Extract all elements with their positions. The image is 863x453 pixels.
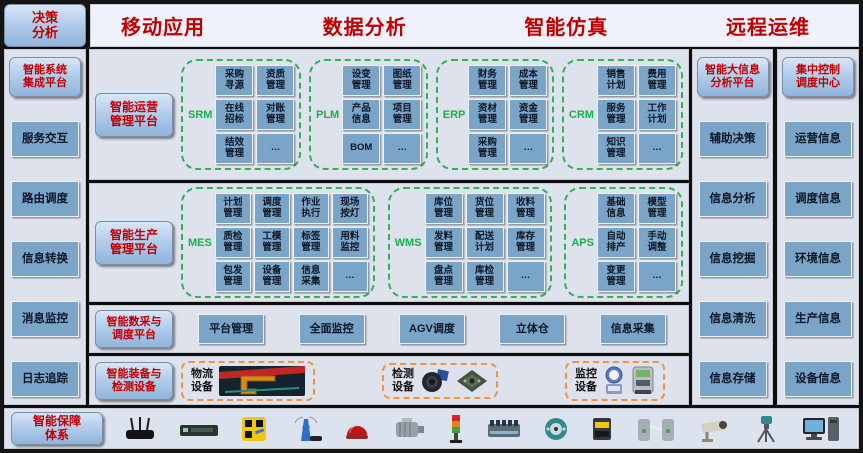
camera-lens-image (420, 368, 450, 394)
module-chip[interactable]: 基础 信息 (597, 193, 635, 224)
antenna-tower-icon (289, 415, 323, 443)
big-info-analysis-column: 智能大信息 分析平台 辅助决策 信息分析 信息挖掘 信息清洗 信息存储 (692, 49, 773, 405)
module-chip[interactable]: 服务 管理 (597, 99, 635, 130)
module-chip-more[interactable]: … (509, 133, 547, 164)
module-chip[interactable]: 盘点 管理 (425, 261, 463, 292)
module-chip[interactable]: 产品 信息 (342, 99, 380, 130)
chip-stereo-warehouse[interactable]: 立体仓 (499, 314, 565, 344)
module-chip[interactable]: 包发 管理 (215, 261, 251, 292)
support-system-label[interactable]: 智能保障 体系 (11, 412, 103, 445)
sidebar-item-log-trace[interactable]: 日志追踪 (11, 361, 79, 397)
module-chip[interactable]: 财务 管理 (468, 65, 506, 96)
col2-item-operation-info[interactable]: 运营信息 (784, 121, 852, 157)
module-chip[interactable]: 工模 管理 (254, 227, 290, 258)
turnstile-gate-icon (636, 415, 676, 443)
group-crm-name: CRM (569, 109, 594, 121)
module-chip[interactable]: 图纸 管理 (383, 65, 421, 96)
central-control-title[interactable]: 集中控制 调度中心 (782, 57, 854, 97)
col1-item-info-analysis[interactable]: 信息分析 (699, 181, 767, 217)
network-switch-icon (179, 417, 219, 441)
module-chip[interactable]: 资材 管理 (468, 99, 506, 130)
module-chip[interactable]: 质检 管理 (215, 227, 251, 258)
support-system-bar: 智能保障 体系 (4, 408, 859, 449)
chip-full-monitoring[interactable]: 全面监控 (299, 314, 365, 344)
module-chip[interactable]: 在线 招标 (215, 99, 253, 130)
col1-item-info-cleaning[interactable]: 信息清洗 (699, 301, 767, 337)
chip-agv-dispatch[interactable]: AGV调度 (399, 314, 465, 344)
group-plm-name: PLM (316, 109, 339, 121)
module-chip[interactable]: 库位 管理 (425, 193, 463, 224)
module-chip[interactable]: 用料 监控 (332, 227, 368, 258)
big-info-analysis-title[interactable]: 智能大信息 分析平台 (697, 57, 769, 97)
qr-code-scanner-icon (240, 416, 268, 442)
sidebar-item-route-dispatch[interactable]: 路由调度 (11, 181, 79, 217)
device-box-inspection: 检测 设备 (382, 363, 498, 399)
production-platform-label[interactable]: 智能生产 管理平台 (95, 221, 173, 265)
module-chip-more[interactable]: … (256, 133, 294, 164)
water-meter-image (603, 366, 625, 396)
production-platform-panel: 智能生产 管理平台 MES 计划 管理 调度 管理 作业 执行 现场 按灯 质检… (89, 183, 689, 302)
group-crm: CRM 销售 计划 费用 管理 服务 管理 工作 计划 知识 管理 … (562, 59, 683, 170)
module-chip[interactable]: 费用 管理 (638, 65, 676, 96)
module-chip[interactable]: 信息 采集 (293, 261, 329, 292)
group-aps: APS 基础 信息 模型 管理 自动 排产 手动 调整 变更 管理 … (564, 187, 683, 298)
module-chip[interactable]: 收料 管理 (507, 193, 545, 224)
inspection-device-label: 检测 设备 (392, 368, 414, 393)
wireless-router-icon (122, 415, 158, 443)
group-erp: ERP 财务 管理 成本 管理 资材 管理 资金 管理 采购 管理 … (436, 59, 555, 170)
header-remote-ops: 远程运维 (726, 11, 810, 40)
rotary-encoder-icon (543, 417, 569, 441)
alarm-dome-light-icon (344, 417, 370, 441)
module-chip[interactable]: 资质 管理 (256, 65, 294, 96)
module-chip[interactable]: 现场 按灯 (332, 193, 368, 224)
module-chip[interactable]: BOM (342, 133, 380, 164)
col1-item-assisted-decision[interactable]: 辅助决策 (699, 121, 767, 157)
module-chip[interactable]: 库检 管理 (466, 261, 504, 292)
module-chip[interactable]: 计划 管理 (215, 193, 251, 224)
main-platforms-area: 智能运营 管理平台 SRM 采购 寻源 资质 管理 在线 招标 对账 管理 结效… (89, 49, 689, 405)
module-chip[interactable]: 采购 寻源 (215, 65, 253, 96)
crane-image (219, 366, 305, 396)
sidebar-item-message-monitor[interactable]: 消息监控 (11, 301, 79, 337)
module-chip[interactable]: 销售 计划 (597, 65, 635, 96)
plc-terminal-module-icon (486, 418, 522, 440)
sidebar-item-service-interaction[interactable]: 服务交互 (11, 121, 79, 157)
power-meter-image (631, 366, 655, 396)
col2-item-environment-info[interactable]: 环境信息 (784, 241, 852, 277)
integration-platform-column: 智能系统 集成平台 服务交互 路由调度 信息转换 消息监控 日志追踪 (4, 49, 86, 405)
module-chip[interactable]: 知识 管理 (597, 133, 635, 164)
module-chip[interactable]: 变更 管理 (597, 261, 635, 292)
group-mes-name: MES (188, 237, 212, 249)
group-plm: PLM 设变 管理 图纸 管理 产品 信息 项目 管理 BOM … (309, 59, 428, 170)
header-mobile-apps: 移动应用 (121, 11, 205, 40)
module-chip[interactable]: 手动 调整 (638, 227, 676, 258)
central-control-column: 集中控制 调度中心 运营信息 调度信息 环境信息 生产信息 设备信息 (777, 49, 859, 405)
header-smart-simulation: 智能仿真 (524, 11, 608, 40)
module-chip[interactable]: 工作 计划 (638, 99, 676, 130)
module-chip[interactable]: 库存 管理 (507, 227, 545, 258)
col1-item-info-mining[interactable]: 信息挖掘 (699, 241, 767, 277)
group-mes: MES 计划 管理 调度 管理 作业 执行 现场 按灯 质检 管理 工模 管理 … (181, 187, 375, 298)
module-chip[interactable]: 项目 管理 (383, 99, 421, 130)
module-chip[interactable]: 资金 管理 (509, 99, 547, 130)
module-chip-more[interactable]: … (383, 133, 421, 164)
circuit-board-image (456, 369, 488, 393)
decision-analysis-button[interactable]: 决策 分析 (4, 4, 86, 47)
chip-platform-management[interactable]: 平台管理 (198, 314, 264, 344)
col2-item-equipment-info[interactable]: 设备信息 (784, 361, 852, 397)
group-erp-name: ERP (443, 109, 466, 121)
data-acquisition-panel: 智能数采与 调度平台 平台管理 全面监控 AGV调度 立体仓 信息采集 (89, 305, 689, 353)
data-acquisition-label[interactable]: 智能数采与 调度平台 (95, 310, 173, 348)
module-chip-more[interactable]: … (638, 261, 676, 292)
module-chip-more[interactable]: … (507, 261, 545, 292)
group-aps-name: APS (571, 237, 594, 249)
group-srm: SRM 采购 寻源 资质 管理 在线 招标 对账 管理 结效 管理 … (181, 59, 301, 170)
module-chip[interactable]: 作业 执行 (293, 193, 329, 224)
chip-info-collection[interactable]: 信息采集 (600, 314, 666, 344)
cctv-camera-icon (697, 416, 731, 442)
equipment-label[interactable]: 智能装备与 检测设备 (95, 362, 173, 400)
module-chip[interactable]: 调度 管理 (254, 193, 290, 224)
col1-item-info-storage[interactable]: 信息存储 (699, 361, 767, 397)
top-header-bar: 移动应用 数据分析 智能仿真 远程运维 (90, 4, 859, 47)
module-chip[interactable]: 成本 管理 (509, 65, 547, 96)
module-chip[interactable]: 结效 管理 (215, 133, 253, 164)
operation-platform-label[interactable]: 智能运营 管理平台 (95, 93, 173, 137)
module-chip[interactable]: 标签 管理 (293, 227, 329, 258)
group-srm-name: SRM (188, 109, 212, 121)
barcode-reader-icon (590, 416, 614, 442)
module-chip[interactable]: 自动 排产 (597, 227, 635, 258)
sidebar-item-info-convert[interactable]: 信息转换 (11, 241, 79, 277)
operation-platform-panel: 智能运营 管理平台 SRM 采购 寻源 资质 管理 在线 招标 对账 管理 结效… (89, 49, 689, 180)
module-chip[interactable]: 发料 管理 (425, 227, 463, 258)
electric-motor-icon (392, 416, 426, 442)
module-chip[interactable]: 对账 管理 (256, 99, 294, 130)
signal-tower-light-icon (447, 414, 465, 444)
architecture-diagram: 决策 分析 移动应用 数据分析 智能仿真 远程运维 智能系统 集成平台 服务交互… (0, 0, 863, 453)
module-chip-more[interactable]: … (332, 261, 368, 292)
surveying-instrument-icon (752, 414, 780, 444)
module-chip[interactable]: 设备 管理 (254, 261, 290, 292)
col2-item-production-info[interactable]: 生产信息 (784, 301, 852, 337)
device-icons-row (111, 414, 852, 444)
module-chip[interactable]: 货位 管理 (466, 193, 504, 224)
header-data-analysis: 数据分析 (323, 11, 407, 40)
monitoring-device-label: 监控 设备 (575, 368, 597, 393)
integration-platform-title[interactable]: 智能系统 集成平台 (9, 57, 81, 97)
device-box-logistics: 物流 设备 (181, 361, 315, 401)
logistics-device-label: 物流 设备 (191, 368, 213, 393)
col2-item-dispatch-info[interactable]: 调度信息 (784, 181, 852, 217)
device-box-monitoring: 监控 设备 (565, 361, 665, 401)
equipment-panel: 智能装备与 检测设备 物流 设备 检测 设备 (89, 356, 689, 405)
group-wms: WMS 库位 管理 货位 管理 收料 管理 发料 管理 配送 计划 库存 管理 … (388, 187, 552, 298)
desktop-computer-icon (801, 415, 841, 443)
module-chip[interactable]: 采购 管理 (468, 133, 506, 164)
module-chip[interactable]: 配送 计划 (466, 227, 504, 258)
module-chip-more[interactable]: … (638, 133, 676, 164)
module-chip[interactable]: 设变 管理 (342, 65, 380, 96)
group-wms-name: WMS (395, 237, 422, 249)
module-chip[interactable]: 模型 管理 (638, 193, 676, 224)
